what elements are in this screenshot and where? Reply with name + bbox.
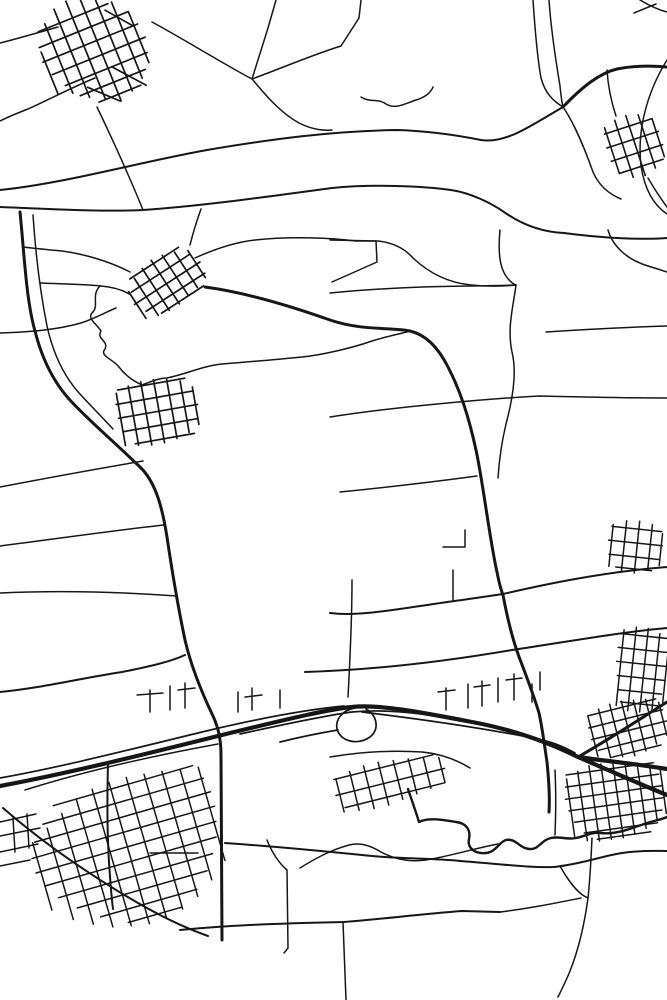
street	[589, 766, 600, 841]
minor-road	[0, 828, 40, 836]
street	[33, 843, 52, 910]
layer-secondary	[0, 107, 667, 936]
minor-road	[443, 530, 465, 547]
minor-road	[555, 770, 556, 835]
street	[35, 792, 211, 842]
minor-road	[330, 396, 667, 417]
street	[52, 37, 145, 74]
stream-road	[408, 789, 667, 853]
street	[128, 907, 181, 922]
secondary-road	[0, 186, 667, 239]
street	[611, 145, 662, 162]
street	[637, 763, 646, 828]
secondary-road	[0, 655, 185, 692]
street	[616, 630, 624, 706]
street	[77, 871, 207, 908]
minor-road	[506, 678, 522, 680]
minor-road	[560, 866, 588, 898]
street	[566, 763, 653, 775]
street	[640, 628, 649, 712]
minor-road	[340, 476, 477, 492]
layer-stream	[408, 789, 667, 853]
street	[38, 4, 108, 32]
minor-road	[0, 592, 177, 596]
primary-road	[563, 66, 667, 107]
minor-road	[533, 0, 563, 107]
minor-road	[634, 4, 656, 13]
cluster-settlement-mid-left	[113, 373, 203, 450]
street	[652, 634, 660, 710]
street	[659, 702, 667, 735]
street	[659, 534, 662, 566]
minor-road	[348, 580, 352, 697]
secondary-road	[305, 628, 667, 672]
minor-road	[330, 240, 377, 282]
minor-road	[245, 695, 262, 697]
minor-road	[300, 844, 498, 868]
street	[88, 78, 121, 111]
minor-road	[195, 238, 516, 286]
minor-road	[0, 308, 116, 333]
minor-road	[648, 178, 667, 207]
street	[649, 765, 657, 820]
minor-road	[361, 87, 433, 106]
secondary-road	[0, 107, 563, 190]
minor-road	[252, 0, 276, 79]
secondary-road	[180, 911, 500, 930]
minor-road	[500, 898, 581, 912]
primary-road	[205, 287, 549, 812]
street	[607, 131, 658, 148]
minor-road	[343, 922, 346, 1000]
minor-road	[267, 840, 288, 953]
minor-road	[499, 230, 516, 285]
minor-road	[498, 285, 516, 478]
cluster-hamlet-top-right	[599, 108, 667, 185]
minor-road	[640, 0, 667, 12]
street	[618, 647, 667, 652]
street	[144, 774, 183, 909]
street	[625, 763, 635, 834]
street	[569, 798, 664, 811]
secondary-road	[460, 851, 667, 867]
street	[612, 526, 662, 531]
cluster-cluster-right-mid	[612, 626, 667, 715]
minor-road	[97, 107, 143, 210]
minor-road	[0, 844, 38, 852]
street	[617, 675, 665, 680]
street	[116, 391, 193, 405]
cluster-urban-bottom-right	[561, 756, 667, 845]
cluster-village-center-left	[119, 238, 213, 324]
minor-road	[33, 215, 113, 429]
street	[118, 378, 185, 390]
street	[618, 690, 662, 695]
street	[101, 889, 197, 917]
minor-road	[546, 326, 667, 332]
minor-road	[640, 60, 667, 214]
street	[601, 764, 612, 839]
minor-road	[0, 461, 143, 487]
street	[162, 771, 198, 896]
street	[105, 3, 133, 34]
map-canvas	[0, 0, 667, 1000]
street	[116, 393, 125, 445]
minor-road	[137, 693, 163, 695]
street	[611, 745, 661, 758]
street	[129, 292, 146, 319]
minor-road	[40, 283, 131, 295]
street	[80, 69, 145, 95]
street	[609, 554, 659, 559]
street	[334, 755, 433, 780]
minor-road	[23, 247, 130, 272]
minor-road	[0, 860, 30, 866]
cluster-village-top-left	[25, 0, 164, 122]
primary-road	[20, 212, 222, 940]
street	[628, 627, 637, 711]
minor-road	[549, 0, 563, 107]
street	[617, 661, 667, 666]
layer-minor	[0, 0, 667, 1000]
street	[336, 780, 344, 812]
minor-road	[608, 230, 667, 272]
street	[130, 247, 179, 279]
minor-road	[330, 285, 516, 293]
minor-road	[27, 814, 29, 848]
secondary-road	[225, 843, 461, 861]
street	[45, 24, 73, 94]
motorway-ramps-road	[280, 730, 338, 742]
minor-road	[607, 70, 616, 116]
street	[609, 524, 613, 566]
cluster-urban-bottom-left	[18, 756, 241, 950]
street	[32, 806, 215, 858]
minor-road	[190, 209, 201, 245]
street	[605, 128, 620, 174]
street	[162, 255, 188, 295]
minor-road	[0, 78, 95, 121]
street	[575, 810, 662, 822]
minor-road	[13, 818, 15, 852]
minor-road	[330, 751, 470, 768]
minor-road	[438, 690, 455, 692]
street	[578, 771, 588, 840]
minor-road	[142, 331, 410, 385]
minor-road	[253, 80, 332, 130]
street	[648, 525, 653, 571]
minor-road	[0, 525, 164, 546]
street	[162, 286, 204, 313]
road-map	[0, 0, 667, 1000]
street	[43, 24, 138, 62]
minor-road	[178, 688, 195, 690]
minor-road	[474, 685, 490, 687]
cluster-cluster-south-motorway	[331, 747, 450, 817]
street	[151, 260, 179, 304]
street	[345, 783, 444, 808]
street	[652, 119, 664, 157]
street	[609, 540, 663, 546]
